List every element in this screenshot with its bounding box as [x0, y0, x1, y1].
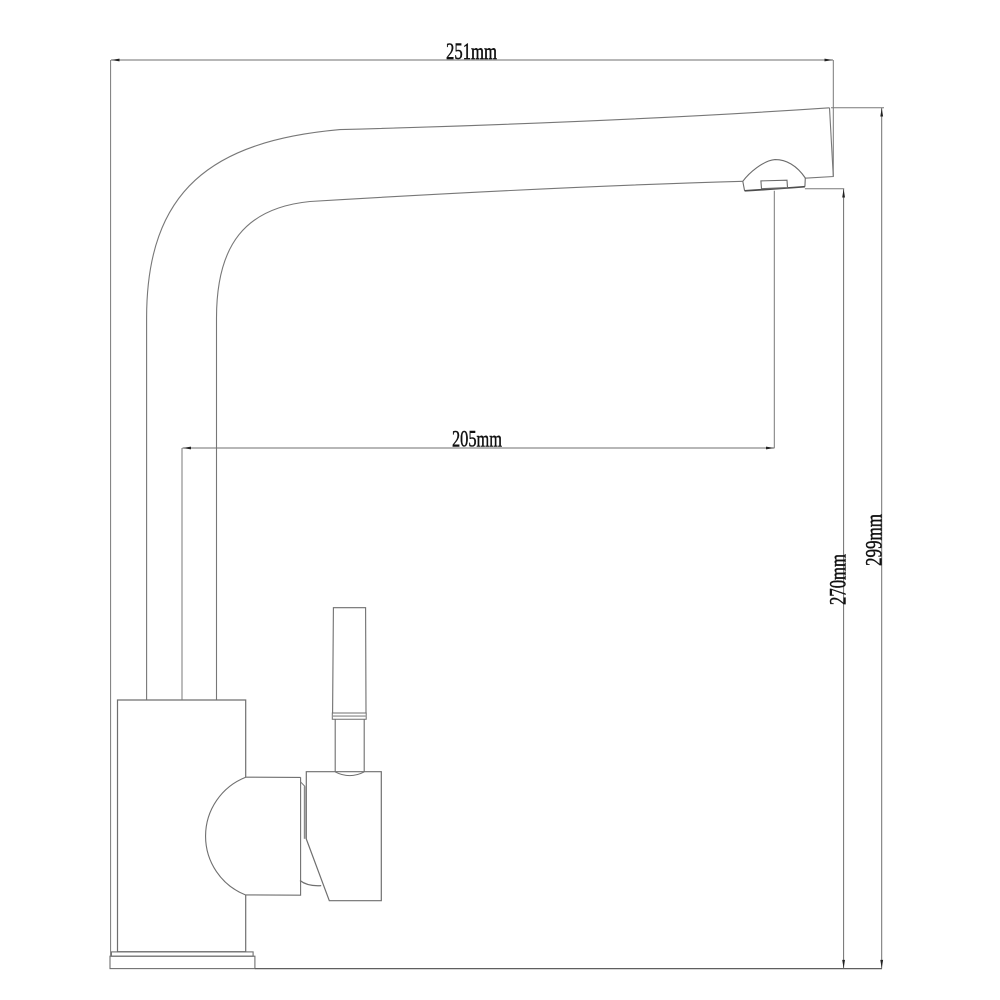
svg-text:270mm: 270mm	[826, 554, 851, 605]
svg-text:205mm: 205mm	[452, 426, 502, 451]
svg-text:299mm: 299mm	[862, 514, 887, 566]
svg-text:251mm: 251mm	[446, 39, 497, 64]
